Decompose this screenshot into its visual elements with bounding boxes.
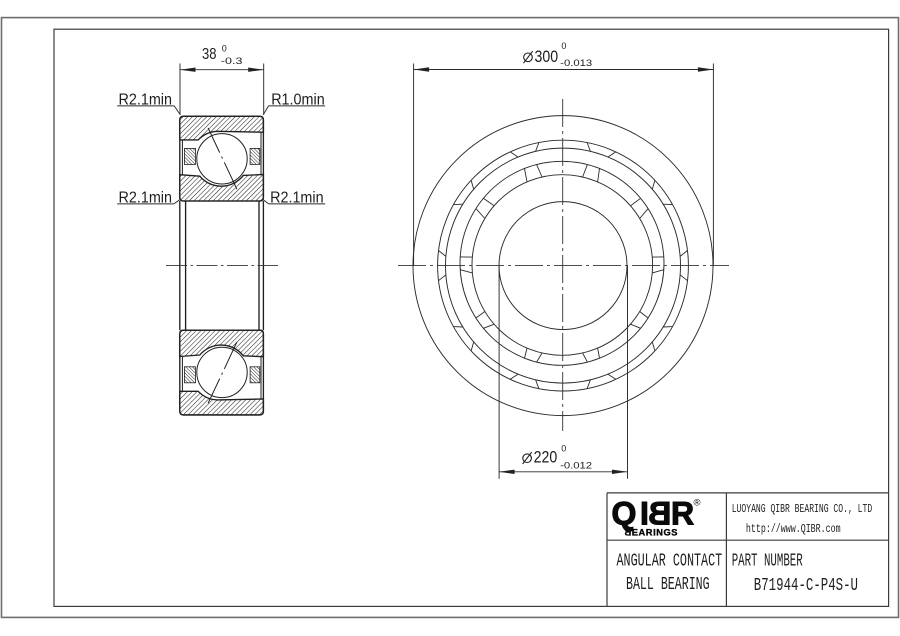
- svg-text:300: 300: [535, 48, 559, 66]
- svg-text:R2.1min: R2.1min: [270, 189, 324, 206]
- svg-text:R: R: [671, 495, 694, 531]
- svg-text:R1.0min: R1.0min: [271, 91, 325, 108]
- svg-text:38: 38: [202, 46, 217, 63]
- svg-text:R2.1min: R2.1min: [119, 91, 173, 108]
- svg-text:-0.012: -0.012: [560, 460, 592, 471]
- svg-text:®: ®: [694, 498, 701, 509]
- svg-text:0: 0: [561, 443, 566, 454]
- svg-text:B71944-C-P4S-U: B71944-C-P4S-U: [754, 576, 858, 596]
- svg-text:http://www.QIBR.com: http://www.QIBR.com: [746, 522, 841, 536]
- svg-text:B: B: [624, 528, 631, 538]
- svg-text:-0.3: -0.3: [221, 55, 243, 66]
- svg-text:PART NUMBER: PART NUMBER: [732, 551, 803, 571]
- svg-text:0: 0: [222, 42, 227, 53]
- svg-text:Q: Q: [612, 495, 637, 531]
- svg-text:0: 0: [561, 40, 566, 51]
- svg-text:R2.1min: R2.1min: [119, 189, 173, 206]
- svg-text:LUOYANG QIBR BEARING CO., LTD: LUOYANG QIBR BEARING CO., LTD: [732, 502, 873, 516]
- svg-text:I: I: [640, 495, 649, 531]
- svg-text:-0.013: -0.013: [560, 57, 592, 68]
- svg-text:220: 220: [534, 449, 558, 467]
- svg-text:BALL BEARING: BALL BEARING: [626, 575, 710, 595]
- svg-text:EARINGS: EARINGS: [632, 528, 678, 538]
- svg-text:B: B: [648, 495, 671, 531]
- svg-text:ANGULAR CONTACT: ANGULAR CONTACT: [617, 551, 723, 571]
